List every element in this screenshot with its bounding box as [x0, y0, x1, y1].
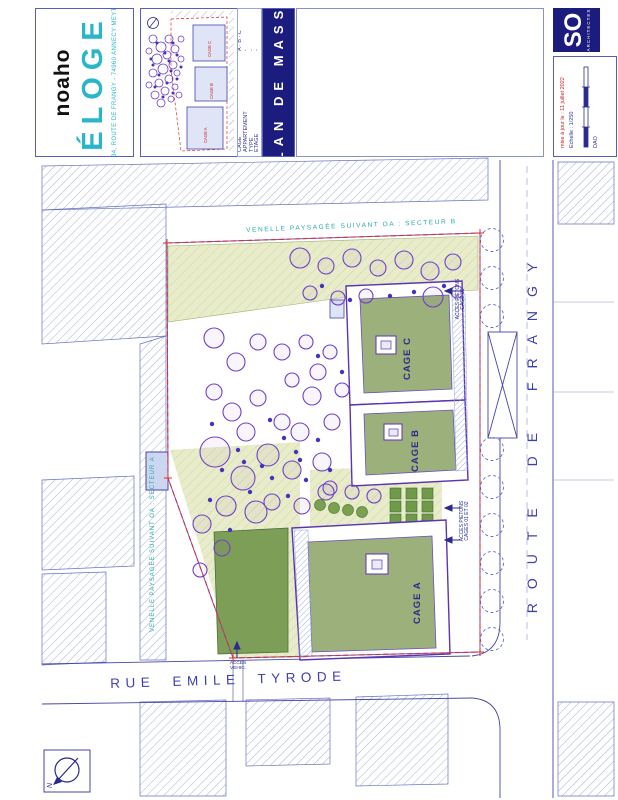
- access-vehicules-label: ACCES VEHIC.: [220, 661, 256, 671]
- minimap-venelle-hatch: [171, 11, 227, 17]
- building-cage-a: [292, 520, 450, 660]
- sheet-title: PLAN DE MASSE: [271, 8, 286, 157]
- minimap-trees: [146, 35, 184, 107]
- cartouche-block: CAGE A · B · C APPARTEMENT - TYPE - ETAG…: [237, 8, 262, 157]
- notes-box: [296, 8, 544, 157]
- architect-logo: SO: [562, 13, 586, 48]
- updated-date: mise à jour le : 11 juillet 2022: [560, 65, 566, 148]
- planter-grid: [390, 488, 433, 525]
- architect-tagline: architectes: [586, 9, 591, 52]
- access-line2: CAGE 03: [461, 274, 466, 324]
- scale-text: Echelle : 1/250: [569, 65, 575, 148]
- plan-sheet: N noaho ÉLOGE 30 - 34, ROUTE DE FRANGY -…: [0, 0, 618, 800]
- minimap-compass: [148, 18, 159, 29]
- info-box: mise à jour le : 11 juillet 2022 Echelle…: [553, 56, 617, 157]
- building-label-cage-a: CAGE A: [410, 566, 424, 624]
- minimap-route-hatch: [229, 11, 234, 152]
- access-line2: VEHIC.: [220, 666, 256, 671]
- cartouche-label: ETAGE: [255, 134, 261, 152]
- graphic-scale-bar: [582, 64, 590, 148]
- project-name: ÉLOGE: [77, 14, 110, 151]
- cartouche-value: -: [255, 13, 261, 51]
- project-address: 30 - 34, ROUTE DE FRANGY - 74960 ANNECY …: [112, 8, 118, 157]
- north-compass: N: [44, 750, 90, 792]
- street-label-route-de-frangy: ROUTE DE FRANGY: [518, 200, 546, 662]
- cartouche-row: ETAGE -: [255, 13, 261, 152]
- minimap-block: CAGE C CAGE B CAGE A: [140, 8, 238, 157]
- venelle-left-annotation: VENELLE PAYSAGÉE SUIVANT OA : SECTEUR A: [150, 422, 160, 632]
- sheet-title-banner: PLAN DE MASSE: [262, 8, 295, 157]
- dao-text: DAO: [593, 65, 599, 148]
- access-pietons-cages-ab-label: ACCES PIETONS CAGES 01 ET 02: [460, 492, 472, 550]
- brand-name: noaho: [51, 49, 75, 117]
- building-label-cage-b: CAGE B: [408, 414, 422, 472]
- access-line2: CAGES 01 ET 02: [465, 492, 470, 550]
- access-pietons-cage-c-label: ACCES PIETONS CAGE 03: [456, 274, 468, 324]
- minimap-drawing: CAGE C CAGE B CAGE A: [141, 9, 235, 154]
- minimap-label-cage-a: CAGE A: [203, 127, 208, 143]
- brand-block: noaho ÉLOGE 30 - 34, ROUTE DE FRANGY - 7…: [35, 8, 134, 157]
- architect-logo-block: SO architectes: [553, 8, 600, 52]
- minimap-label-cage-c: CAGE C: [207, 41, 212, 57]
- building-label-cage-c: CAGE C: [400, 324, 414, 380]
- minimap-label-cage-b: CAGE B: [209, 83, 214, 99]
- crosswalk: [488, 332, 517, 438]
